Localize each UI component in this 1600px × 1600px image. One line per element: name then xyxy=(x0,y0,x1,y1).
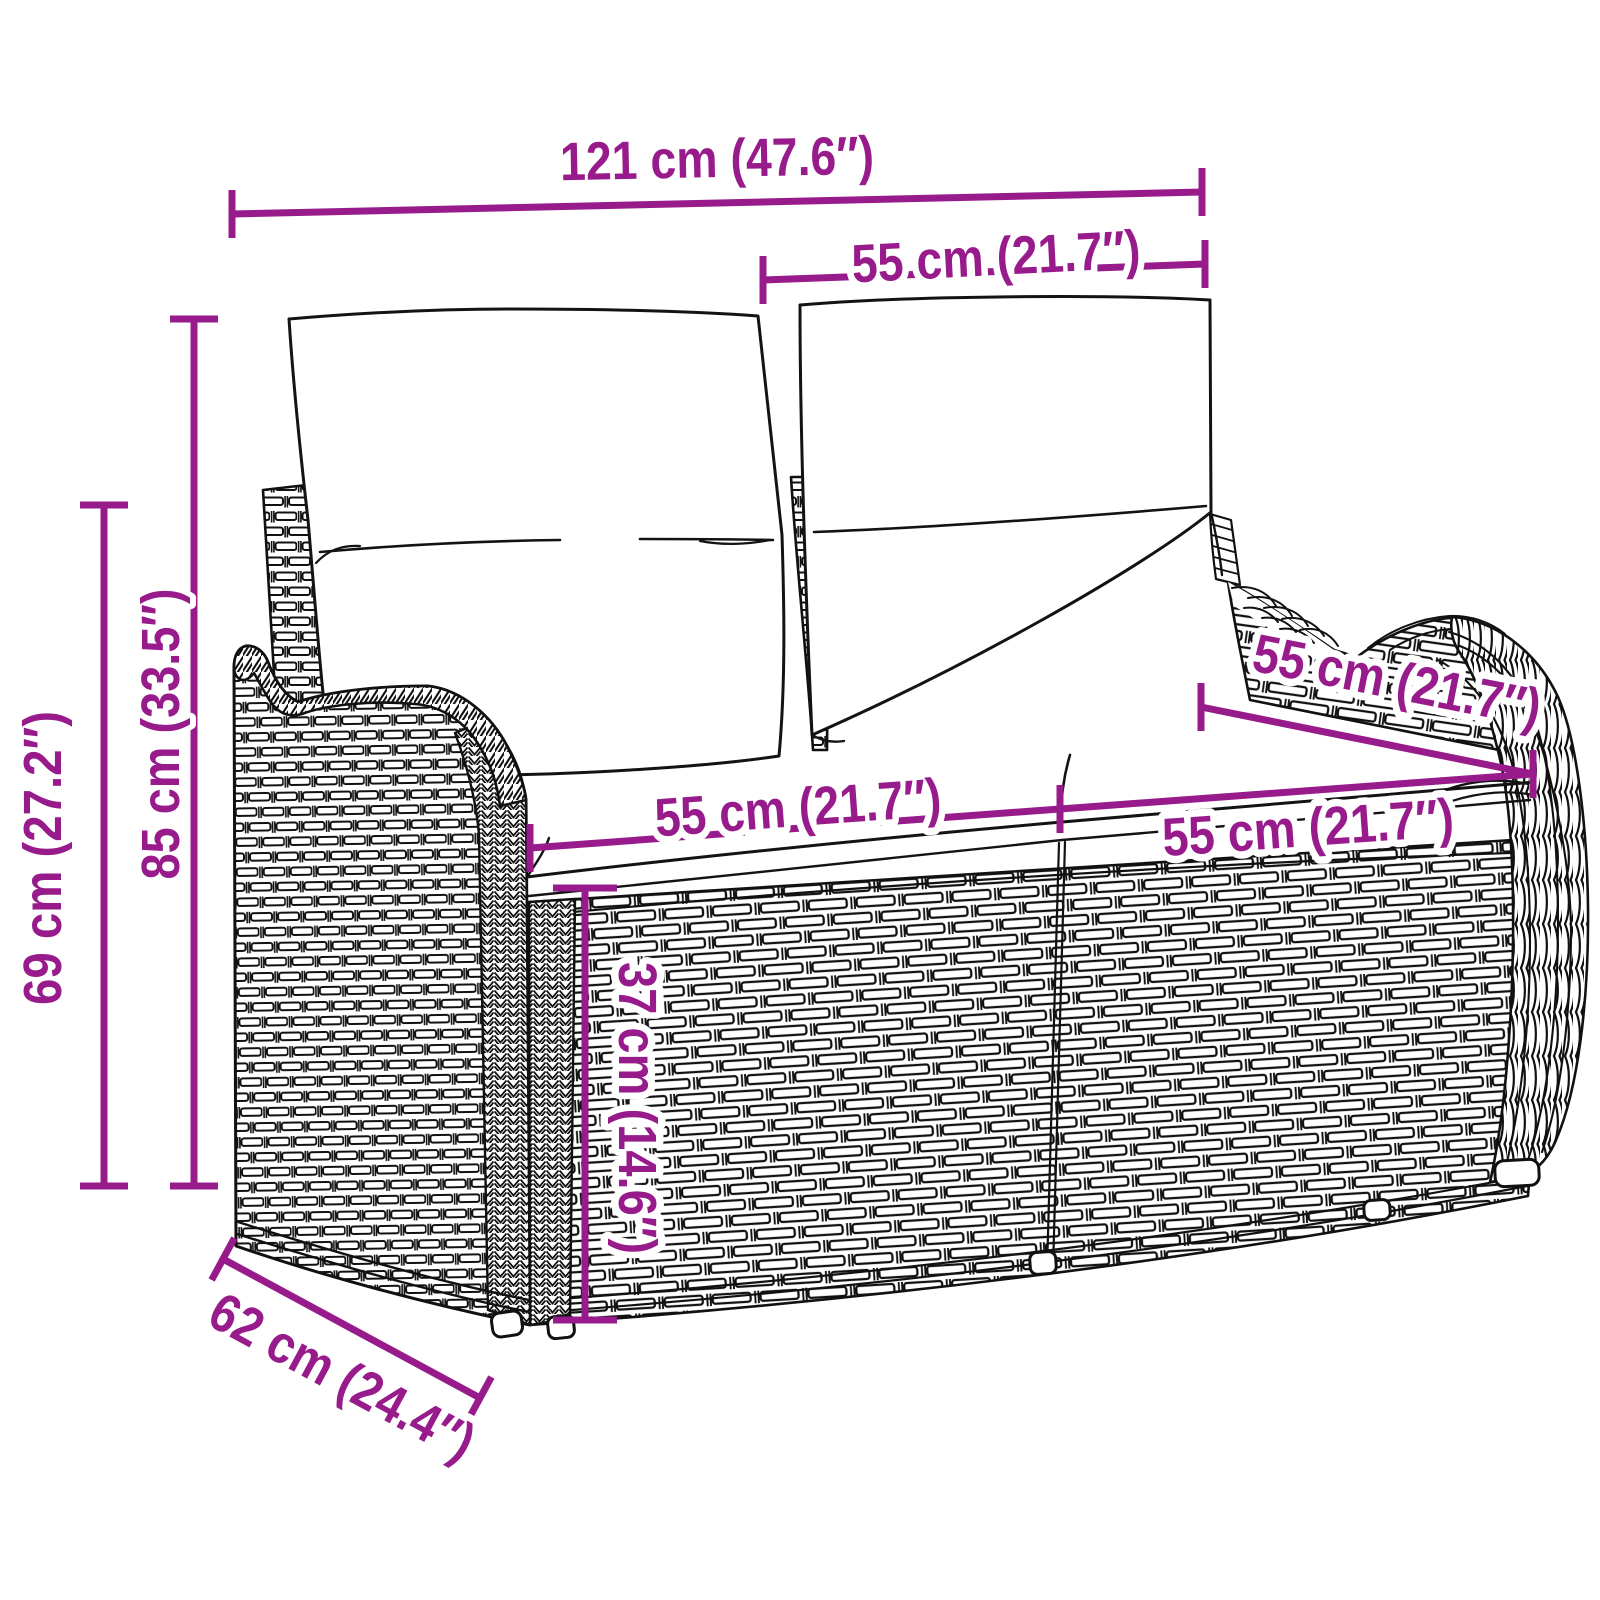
svg-text:37 cm (14.6″): 37 cm (14.6″) xyxy=(607,962,667,1254)
svg-text:85 cm (33.5″): 85 cm (33.5″) xyxy=(131,589,191,880)
svg-text:69 cm (27.2″): 69 cm (27.2″) xyxy=(13,711,73,1005)
svg-text:121 cm (47.6″): 121 cm (47.6″) xyxy=(559,126,874,193)
